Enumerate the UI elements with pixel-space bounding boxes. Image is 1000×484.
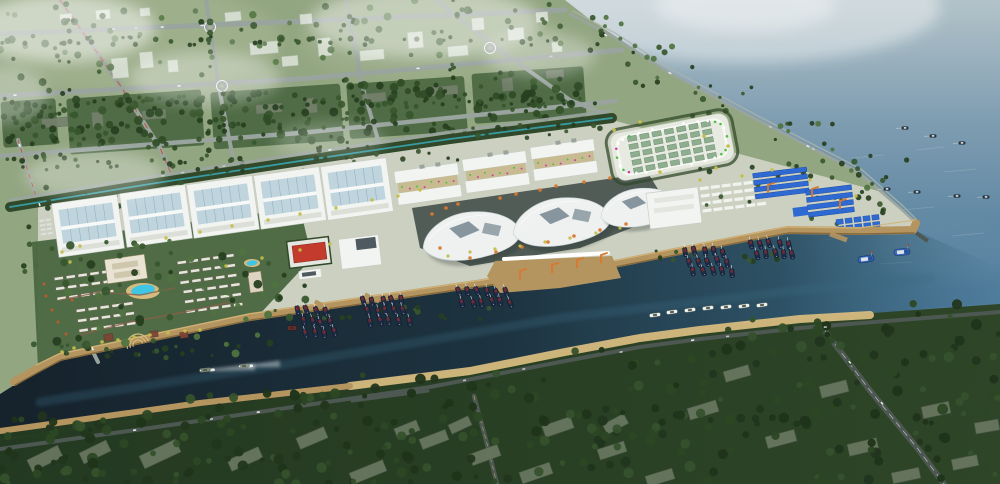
haze-patch-4	[485, 33, 595, 77]
aerial-render-stage	[0, 0, 1000, 484]
haze-patch-5	[25, 151, 165, 199]
haze-patch-6	[275, 122, 385, 158]
exhibition-hall-5	[321, 158, 394, 221]
waterfront-development-aerial-rendering	[0, 0, 1000, 484]
haze-patch-2	[130, 52, 280, 104]
exhibition-hall-1	[52, 195, 125, 258]
exhibition-hall-4	[254, 167, 327, 230]
red-roof-building	[292, 242, 327, 263]
roundabout-1-island	[208, 25, 212, 29]
blue-utility-box	[793, 206, 809, 217]
tug-boat	[288, 326, 297, 331]
exhibition-hall-3	[187, 176, 260, 239]
